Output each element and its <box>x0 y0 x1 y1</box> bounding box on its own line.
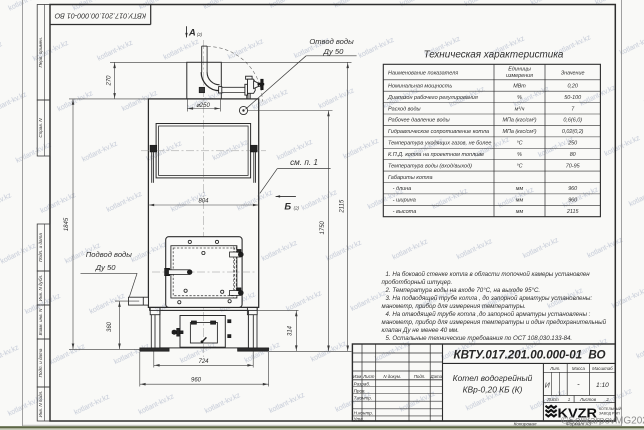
svg-text:Подп. и дата: Подп. и дата <box>38 233 43 262</box>
svg-text:1:10: 1:10 <box>596 382 609 389</box>
svg-text:манометр, прибор для измерени: манометр, прибор для измерения температу… <box>382 303 526 310</box>
svg-text:Значение: Значение <box>561 71 585 77</box>
svg-text:мм: мм <box>516 209 524 215</box>
svg-text:КВр-0,20 КБ (К): КВр-0,20 КБ (К) <box>463 384 523 394</box>
svg-text:Температура уходящих газов, не: Температура уходящих газов, не более <box>388 141 491 147</box>
svg-text:А: А <box>188 28 196 39</box>
svg-text:Перв. примен.: Перв. примен. <box>38 37 43 68</box>
svg-text:270: 270 <box>106 75 112 87</box>
svg-text:724: 724 <box>198 359 209 365</box>
svg-text:Отвод воды: Отвод воды <box>309 37 354 46</box>
svg-text:Ду 50: Ду 50 <box>95 263 117 272</box>
svg-text:Разраб.: Разраб. <box>354 381 371 386</box>
svg-text:5. Остальные технические треб: 5. Остальные технические требования по О… <box>386 335 573 342</box>
svg-text:Диапазон рабочего регулировани: Диапазон рабочего регулирования <box>387 95 478 101</box>
svg-text:Подп. и дата: Подп. и дата <box>38 348 43 377</box>
svg-text:960: 960 <box>568 198 577 204</box>
svg-text:см. п. 1: см. п. 1 <box>290 158 318 167</box>
svg-text:Изм: Изм <box>353 374 361 379</box>
svg-text:КВТУ.017.201.00.000-01 ВО: КВТУ.017.201.00.000-01 ВО <box>54 11 146 20</box>
svg-text:К.П.Д. котла на проектном топл: К.П.Д. котла на проектном топливе <box>388 152 484 158</box>
svg-text:Инв. N подл.: Инв. N подл. <box>38 391 43 418</box>
svg-text:измерения: измерения <box>506 73 533 79</box>
svg-text:мм: мм <box>516 198 524 204</box>
svg-text:Листов: Листов <box>579 397 597 402</box>
svg-text:Справ. N: Справ. N <box>38 118 43 138</box>
svg-text:°С: °С <box>516 141 522 147</box>
svg-text:Номинальная мощность: Номинальная мощность <box>388 84 452 90</box>
svg-text:Лист: Лист <box>546 397 559 402</box>
svg-text:Пров.: Пров. <box>354 388 366 393</box>
svg-text:Лист: Лист <box>362 374 375 379</box>
svg-text:клапан Ду не менее 40 мм.: клапан Ду не менее 40 мм. <box>382 327 459 334</box>
svg-text:проботборный штуцер.: проботборный штуцер. <box>382 279 453 286</box>
svg-text:МПа (кгс/см²): МПа (кгс/см²) <box>502 118 536 124</box>
svg-text:1845: 1845 <box>64 217 70 231</box>
svg-text:(2): (2) <box>197 32 203 37</box>
svg-text:2: 2 <box>605 397 609 402</box>
svg-text:Котел водогрейный: Котел водогрейный <box>453 373 533 383</box>
svg-text:Ду 50: Ду 50 <box>323 47 345 56</box>
svg-text:Копировал: Копировал <box>514 422 537 427</box>
svg-text:%: % <box>517 152 522 158</box>
svg-text:КОТЕЛЬНЫЙ: КОТЕЛЬНЫЙ <box>599 407 622 411</box>
svg-text:⌀250: ⌀250 <box>196 103 210 109</box>
svg-text:314: 314 <box>288 325 294 336</box>
svg-text:%: % <box>517 95 522 101</box>
svg-text:МПа (кгс/см²): МПа (кгс/см²) <box>502 129 536 135</box>
svg-text:МВт: МВт <box>513 84 526 90</box>
svg-text:Н.контр.: Н.контр. <box>354 410 373 415</box>
svg-text:0,20: 0,20 <box>567 84 578 90</box>
svg-text:Температура воды (вход/выход): Температура воды (вход/выход) <box>388 163 472 169</box>
svg-text:80: 80 <box>570 152 576 158</box>
svg-text:(2): (2) <box>294 206 300 211</box>
svg-text:Взам. инв. N: Взам. инв. N <box>38 308 43 335</box>
svg-text:Подвод воды: Подвод воды <box>86 250 132 259</box>
svg-text:Гидравлическое сопротивление к: Гидравлическое сопротивление котла <box>388 129 489 135</box>
svg-text:- ширина: - ширина <box>388 198 416 204</box>
svg-text:Техническая характеристика: Техническая характеристика <box>424 50 564 61</box>
svg-text:804: 804 <box>198 198 209 204</box>
svg-text:Инв. N дубл.: Инв. N дубл. <box>38 275 43 302</box>
svg-text:70-95: 70-95 <box>566 163 581 169</box>
svg-text:N докум.: N докум. <box>383 374 401 379</box>
svg-text:КВТУ.017.201.00.000-01 ВО: КВТУ.017.201.00.000-01 ВО <box>454 349 606 362</box>
svg-text:Б: Б <box>284 202 291 213</box>
svg-text:Т.контр.: Т.контр. <box>354 396 373 401</box>
svg-text:Лит.: Лит. <box>549 366 560 371</box>
svg-text:Утв.: Утв. <box>354 416 364 421</box>
svg-text:1750: 1750 <box>320 220 326 234</box>
svg-text:- высота: - высота <box>388 209 416 215</box>
svg-text:©SolikarpovMG2021: ©SolikarpovMG2021 <box>561 415 644 426</box>
svg-text:Подп.: Подп. <box>414 374 426 379</box>
svg-text:2115: 2115 <box>566 209 580 215</box>
svg-text:мм: мм <box>516 186 524 192</box>
svg-text:1. На боковой стенке котла в: 1. На боковой стенке котла в области топ… <box>386 271 591 278</box>
svg-text:°С: °С <box>516 163 522 169</box>
svg-text:50-100: 50-100 <box>564 95 581 101</box>
svg-text:3. На подводящей трубе котла: 3. На подводящей трубе котла , до запорн… <box>386 295 593 302</box>
svg-text:Расход воды: Расход воды <box>388 106 421 112</box>
svg-text:4. На отводящей трубе котла ,: 4. На отводящей трубе котла ,до запорной… <box>386 311 591 318</box>
svg-text:Наименование показателя: Наименование показателя <box>388 71 458 77</box>
svg-text:2. Температура воды на входе: 2. Температура воды на входе 70°С, на вы… <box>385 287 541 294</box>
svg-text:Габариты котла: Габариты котла <box>388 175 433 181</box>
svg-text:0,6(6,0): 0,6(6,0) <box>563 118 582 124</box>
svg-text:250: 250 <box>567 141 577 147</box>
svg-text:- длина: - длина <box>388 186 411 192</box>
svg-text:Дата: Дата <box>430 374 443 379</box>
svg-text:960: 960 <box>191 378 202 384</box>
svg-text:манометр, прибор для измерени: манометр, прибор для измерения температу… <box>382 319 607 326</box>
svg-text:Рабочее давление воды: Рабочее давление воды <box>388 118 450 124</box>
svg-text:0,02(0,2): 0,02(0,2) <box>562 129 584 135</box>
svg-text:м³/ч: м³/ч <box>515 106 525 112</box>
svg-text:Масса: Масса <box>572 366 586 371</box>
svg-text:2115: 2115 <box>339 199 345 214</box>
svg-text:360: 360 <box>107 321 113 332</box>
svg-text:Единицы: Единицы <box>508 67 531 73</box>
svg-text:960: 960 <box>568 186 577 192</box>
svg-text:Масштаб: Масштаб <box>592 366 613 371</box>
